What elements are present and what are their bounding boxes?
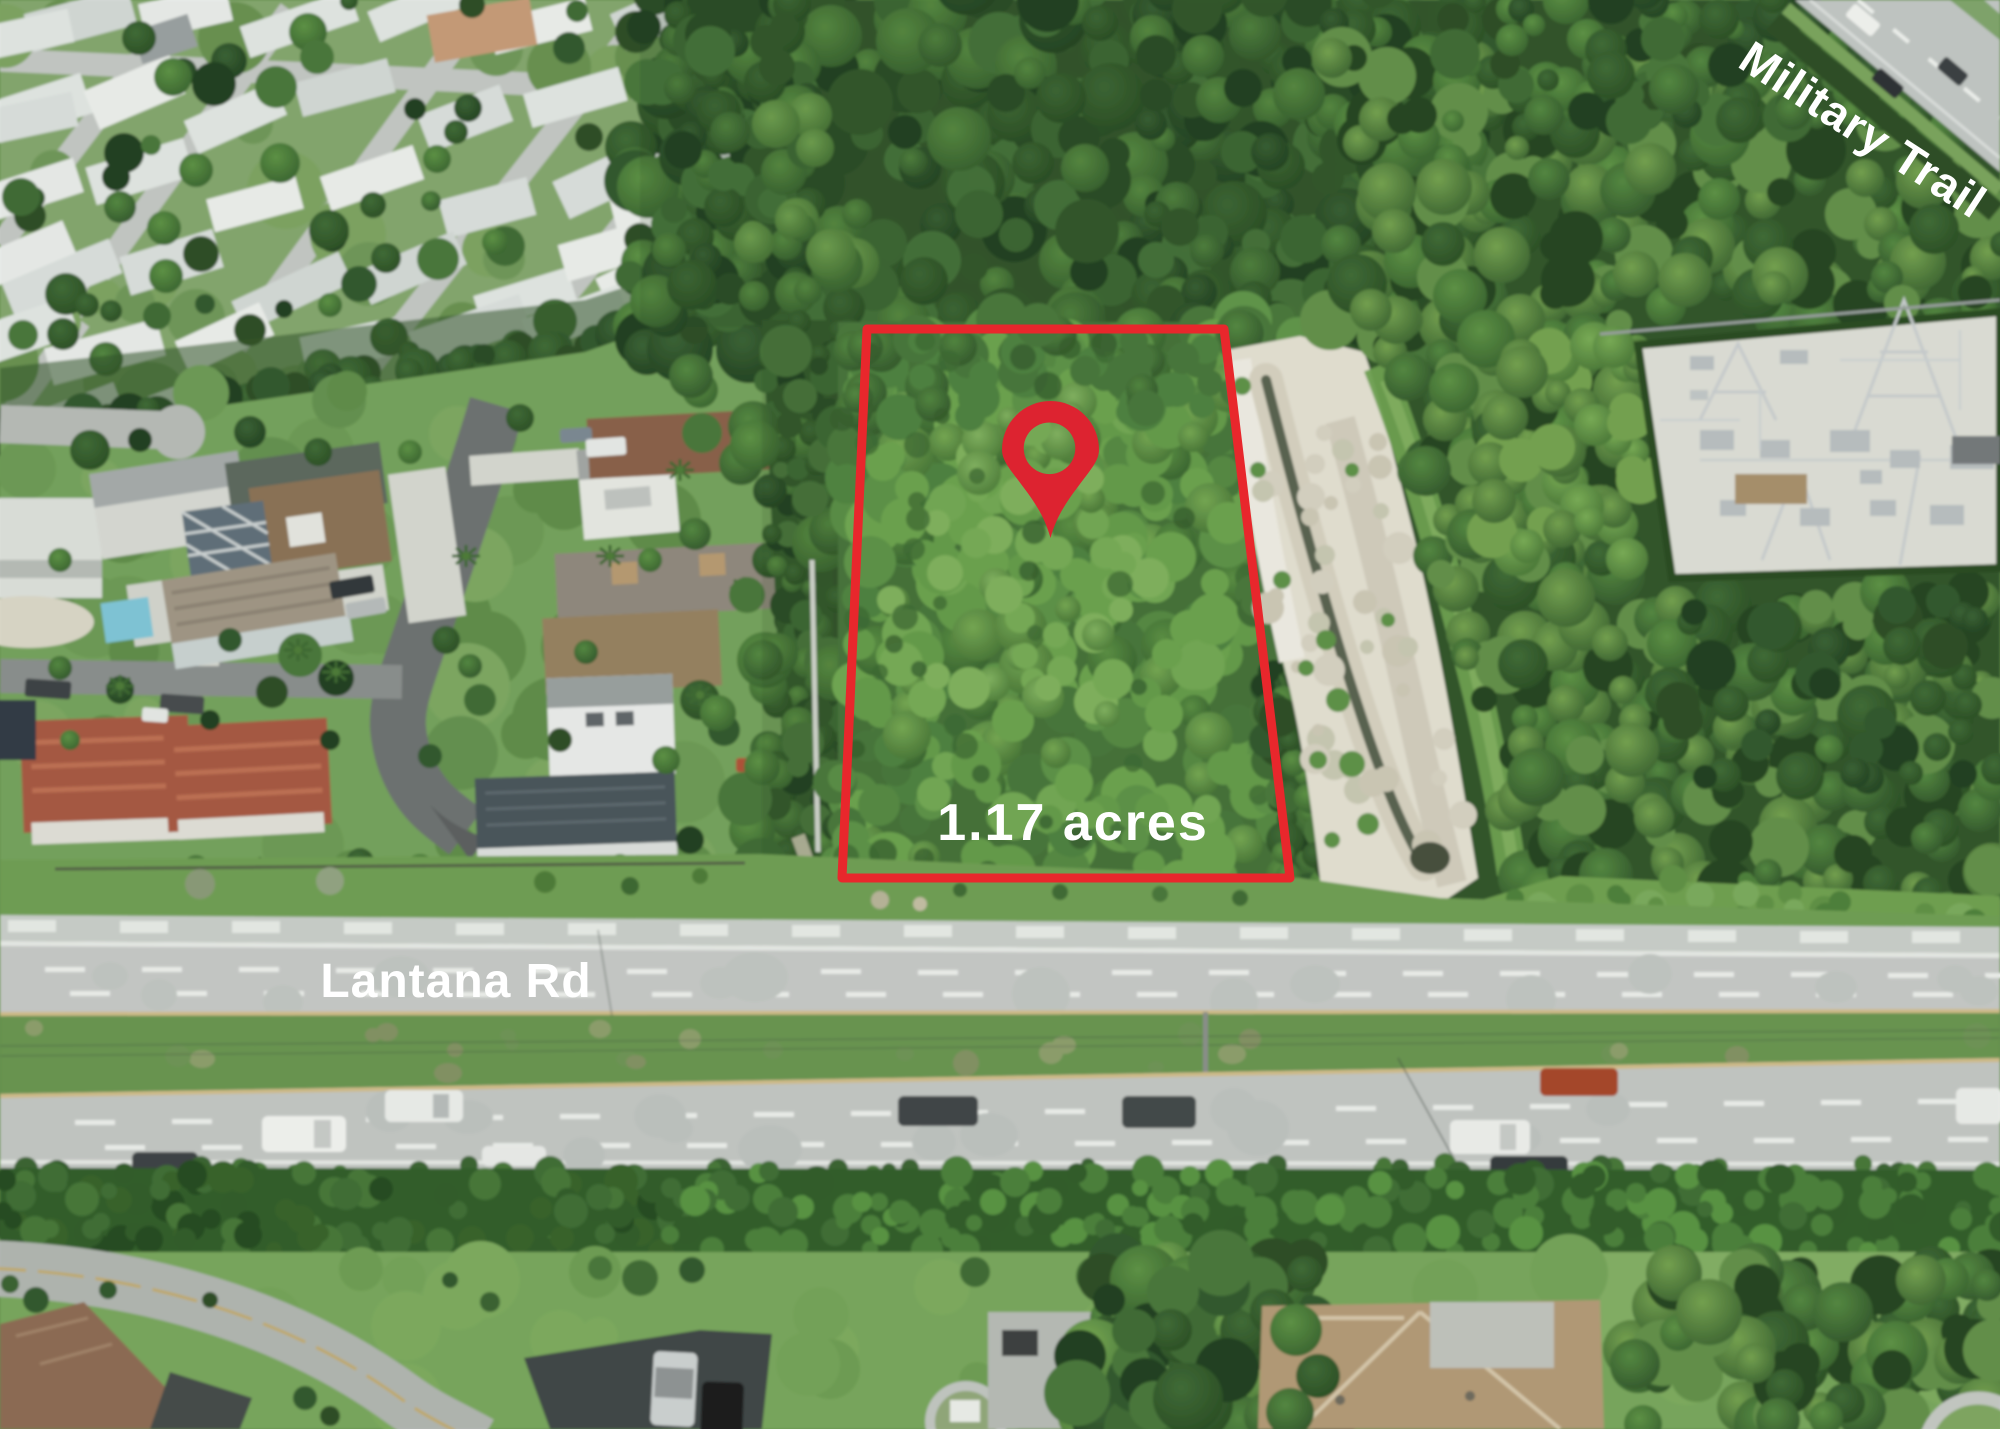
- svg-text:1.17 acres: 1.17 acres: [937, 794, 1209, 852]
- svg-text:Lantana Rd: Lantana Rd: [320, 955, 591, 1008]
